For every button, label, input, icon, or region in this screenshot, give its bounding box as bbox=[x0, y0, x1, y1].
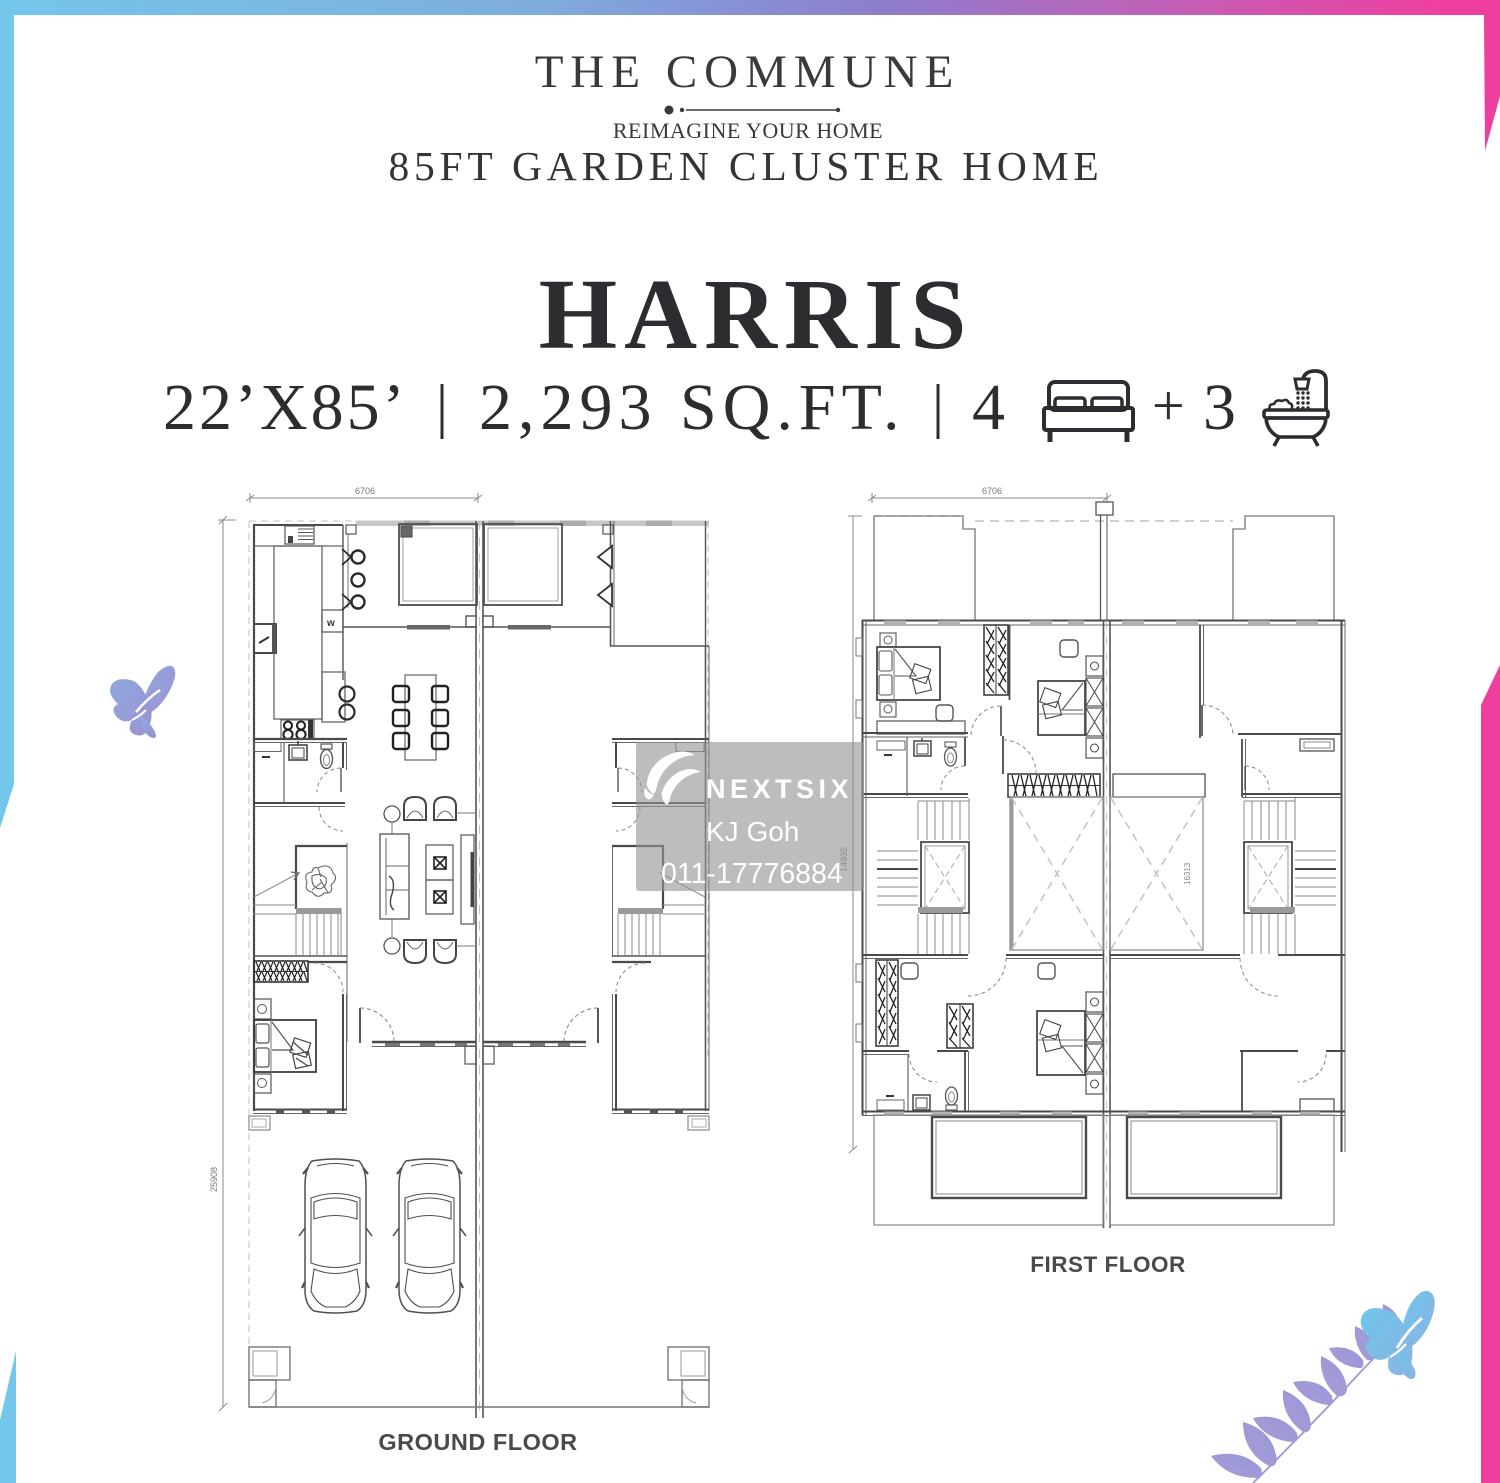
svg-text:GROUND FLOOR: GROUND FLOOR bbox=[378, 1429, 577, 1455]
svg-text:6706: 6706 bbox=[982, 486, 1002, 496]
svg-text:6706: 6706 bbox=[355, 486, 375, 496]
svg-text:011-17776884: 011-17776884 bbox=[661, 858, 843, 890]
svg-text:16313: 16313 bbox=[1183, 862, 1192, 885]
svg-text:KJ Goh: KJ Goh bbox=[706, 816, 799, 847]
svg-text:25908: 25908 bbox=[209, 1167, 219, 1192]
svg-text:NEXTSIX: NEXTSIX bbox=[706, 774, 853, 804]
svg-text:w: w bbox=[326, 618, 335, 629]
svg-text:FIRST FLOOR: FIRST FLOOR bbox=[1030, 1252, 1186, 1277]
